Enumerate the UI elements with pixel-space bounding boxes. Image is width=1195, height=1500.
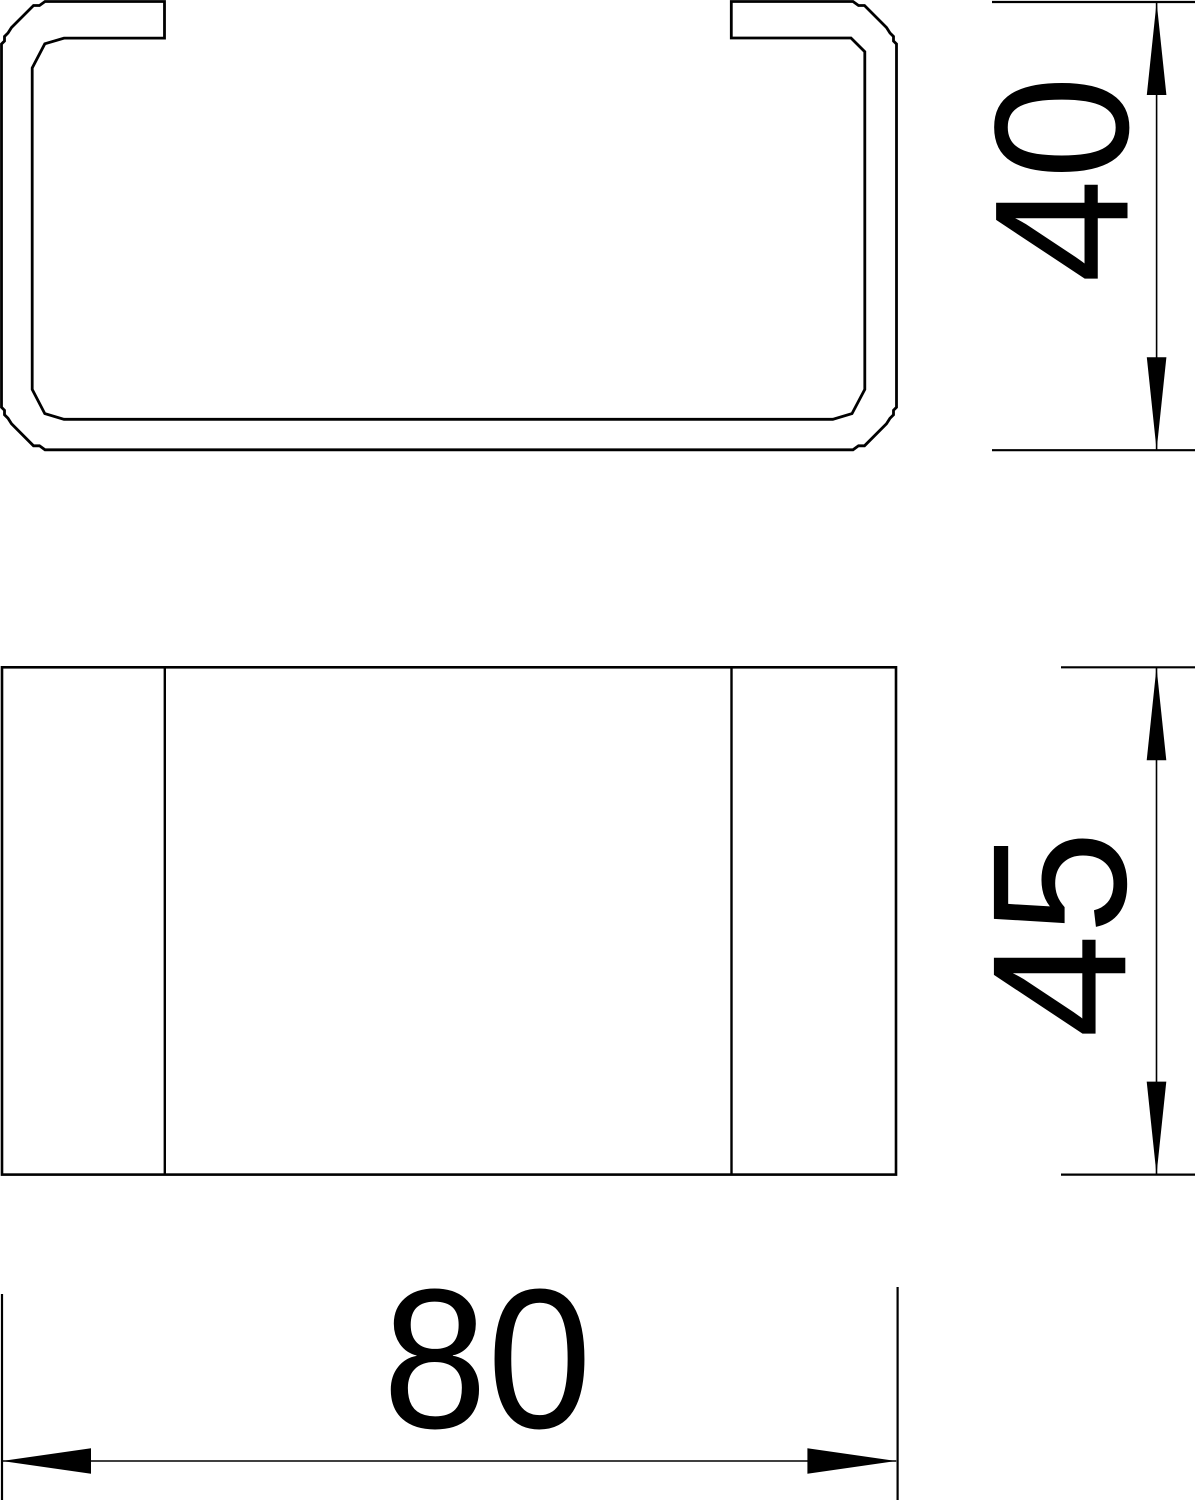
svg-text:80: 80 xyxy=(383,1249,592,1471)
svg-text:45: 45 xyxy=(952,831,1166,1038)
svg-text:40: 40 xyxy=(954,76,1168,283)
